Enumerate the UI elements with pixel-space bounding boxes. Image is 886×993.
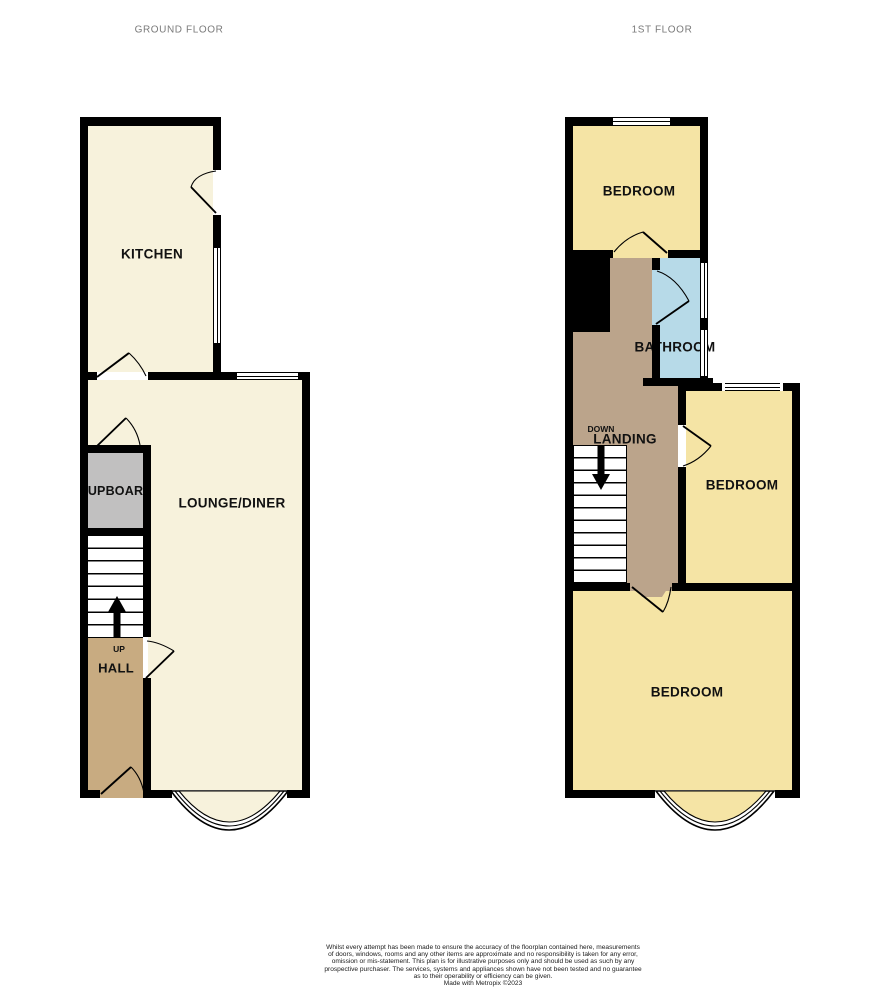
first-staircase (573, 445, 627, 583)
kitchen-label: KITCHEN (121, 247, 183, 262)
wall-segment (775, 790, 800, 798)
lounge-diner-label: LOUNGE/DINER (178, 496, 285, 511)
wall-segment (652, 325, 660, 380)
wall-segment (302, 372, 310, 798)
wall-segment (678, 467, 686, 591)
wall-segment (565, 790, 655, 798)
wall-segment (287, 790, 310, 798)
floorplan-page: GROUND FLOOR 1ST FLOOR KITCHEN LOUNGE/DI… (0, 0, 886, 993)
wall-segment (88, 528, 143, 536)
first-bay-window (656, 791, 774, 830)
wall-segment (573, 250, 613, 258)
wall-segment (565, 117, 573, 798)
bathroom-window-2 (700, 330, 708, 376)
wall-segment (652, 258, 660, 270)
metropix-credit: Made with Metropix ©2023 (283, 980, 683, 987)
wall-segment (148, 372, 237, 380)
bathroom-window-1 (700, 263, 708, 318)
wall-segment (668, 250, 708, 258)
disclaimer-text: Whilst every attempt has been made to en… (283, 944, 683, 987)
first-floor-title: 1ST FLOOR (632, 25, 693, 36)
wall-segment (213, 215, 221, 248)
down-label: DOWN (588, 424, 615, 434)
lounge-window (237, 372, 298, 380)
wall-segment (143, 678, 151, 798)
wall-segment (700, 126, 708, 263)
wall-segment (565, 583, 630, 591)
kitchen-window (213, 248, 221, 343)
cupboard-label-clip: CUPBOARD (88, 453, 143, 528)
wall-segment (88, 372, 97, 380)
up-label: UP (113, 644, 125, 654)
bedroom-middle-label: BEDROOM (706, 478, 779, 493)
ground-staircase (88, 536, 143, 638)
bedroom-back-label: BEDROOM (651, 685, 724, 700)
hall-label: HALL (98, 661, 134, 676)
bedroom-front-label: BEDROOM (603, 184, 676, 199)
wall-segment (80, 117, 221, 126)
lounge-diner-room-left (88, 380, 148, 445)
cupboard-label: CUPBOARD (88, 484, 143, 498)
ground-floor-title: GROUND FLOOR (135, 25, 224, 36)
bedroom-front-window (613, 117, 670, 126)
wall-segment (143, 445, 151, 637)
ground-bay-window (171, 791, 288, 830)
disclaimer-line: as to their operability or efficiency ca… (283, 973, 683, 980)
chimney-breast (573, 258, 610, 332)
disclaimer-line: prospective purchaser. The services, sys… (283, 966, 683, 973)
bedroom-middle-window (725, 383, 780, 391)
wall-segment (678, 383, 686, 425)
wall-segment (213, 126, 221, 170)
wall-segment (80, 117, 88, 798)
disclaimer-line: omission or mis-statement. This plan is … (283, 958, 683, 965)
wall-segment (672, 583, 800, 591)
wall-segment (88, 445, 143, 453)
disclaimer-line: of doors, windows, rooms and any other i… (283, 951, 683, 958)
wall-segment (700, 318, 708, 330)
disclaimer-line: Whilst every attempt has been made to en… (283, 944, 683, 951)
wall-segment (80, 790, 100, 798)
lounge-diner-room (148, 380, 302, 790)
